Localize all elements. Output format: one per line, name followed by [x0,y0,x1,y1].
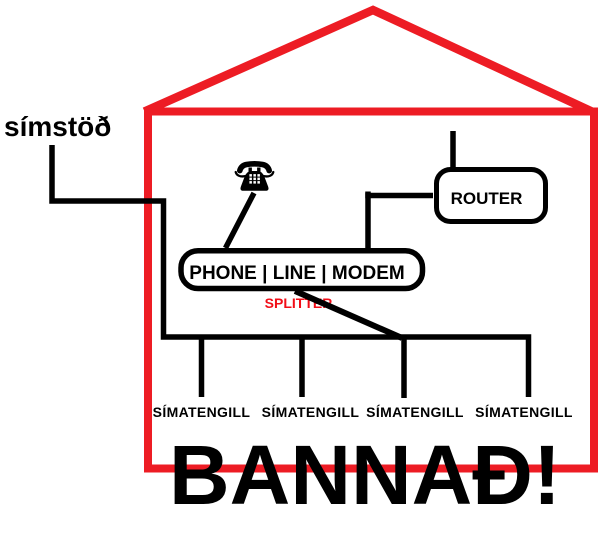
svg-text:SÍMATENGILL: SÍMATENGILL [366,404,464,420]
svg-text:PHONE | LINE | MODEM: PHONE | LINE | MODEM [189,263,404,284]
svg-text:ROUTER: ROUTER [451,189,523,208]
svg-text:SÍMATENGILL: SÍMATENGILL [475,404,573,420]
svg-text:BANNAÐ!: BANNAÐ! [169,428,561,522]
svg-text:SÍMATENGILL: SÍMATENGILL [262,404,360,420]
svg-text:SÍMATENGILL: SÍMATENGILL [153,404,251,420]
svg-text:símstöð: símstöð [4,111,111,142]
